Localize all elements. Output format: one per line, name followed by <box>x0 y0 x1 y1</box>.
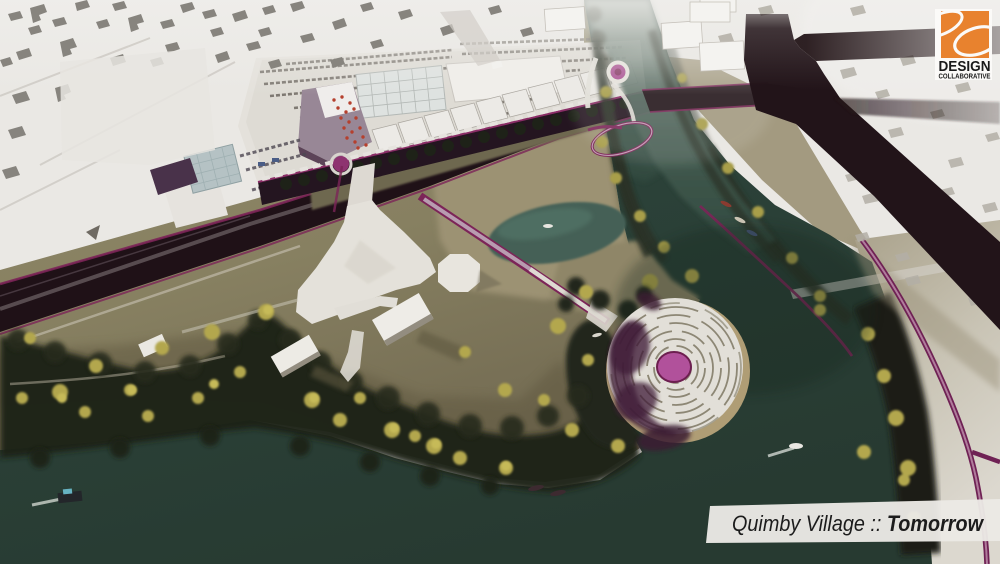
svg-text:Quimby Village :: Tomorrow: Quimby Village :: Tomorrow <box>732 511 985 536</box>
svg-text:COLLABORATIVE: COLLABORATIVE <box>939 74 991 81</box>
